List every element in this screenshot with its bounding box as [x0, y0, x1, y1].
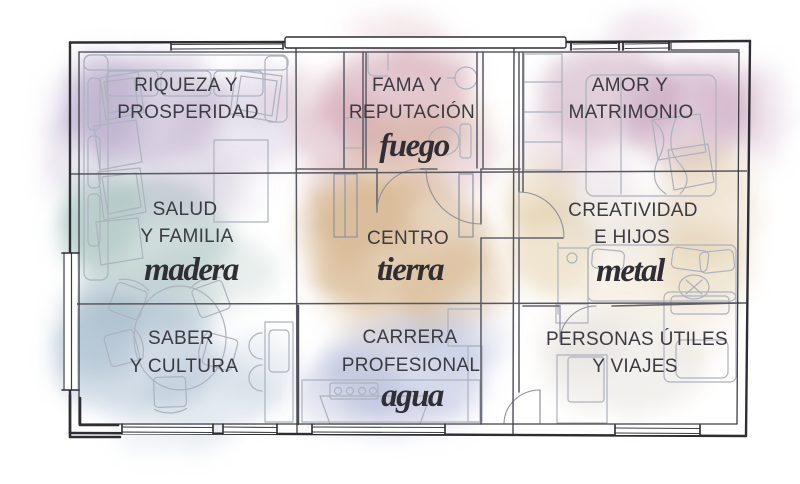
- svg-text:metal: metal: [596, 253, 666, 289]
- svg-text:madera: madera: [144, 252, 239, 288]
- svg-text:SABER: SABER: [148, 328, 214, 349]
- svg-text:CARRERA: CARRERA: [362, 327, 457, 348]
- svg-text:PERSONAS ÚTILES: PERSONAS ÚTILES: [546, 328, 728, 350]
- svg-text:PROFESIONAL: PROFESIONAL: [342, 355, 480, 376]
- svg-text:REPUTACIÓN: REPUTACIÓN: [349, 101, 475, 123]
- svg-text:MATRIMONIO: MATRIMONIO: [568, 102, 693, 123]
- svg-text:agua: agua: [381, 378, 444, 414]
- svg-text:CENTRO: CENTRO: [367, 228, 449, 249]
- svg-text:fuego: fuego: [379, 128, 449, 164]
- svg-text:FAMA Y: FAMA Y: [372, 75, 442, 96]
- svg-text:SALUD: SALUD: [153, 199, 218, 220]
- svg-text:Y FAMILIA: Y FAMILIA: [140, 226, 233, 247]
- svg-text:AMOR Y: AMOR Y: [592, 75, 668, 96]
- svg-text:CREATIVIDAD: CREATIVIDAD: [568, 200, 698, 221]
- svg-text:tierra: tierra: [377, 252, 444, 288]
- svg-text:Y VIAJES: Y VIAJES: [592, 356, 677, 377]
- svg-text:Y CULTURA: Y CULTURA: [130, 356, 239, 377]
- svg-text:RIQUEZA Y: RIQUEZA Y: [134, 75, 238, 96]
- svg-text:E HIJOS: E HIJOS: [594, 227, 670, 248]
- svg-text:PROSPERIDAD: PROSPERIDAD: [117, 102, 259, 123]
